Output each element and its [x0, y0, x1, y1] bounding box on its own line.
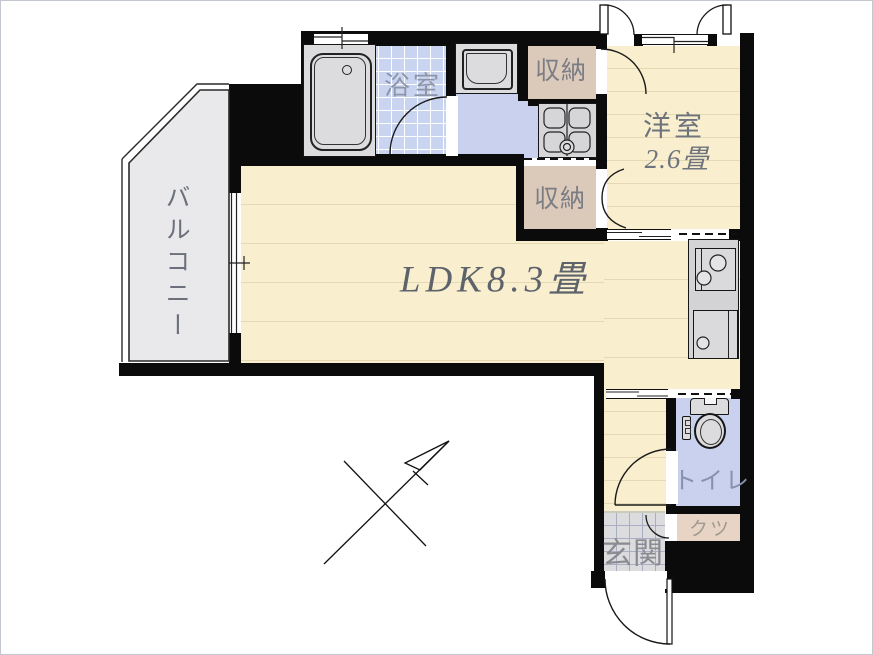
western-room-label: 洋室	[643, 112, 705, 141]
bathtub-inner-line	[314, 57, 366, 145]
storage-lower-label: 収納	[534, 187, 586, 213]
wall-segment	[229, 333, 241, 366]
wall-segment	[518, 41, 528, 101]
storage-upper-label: 収納	[535, 59, 587, 85]
floor-plan: 浴室 収納 収納 洋室 2.6畳 LDK8.3畳 バルコニー トイレ クツ 玄関	[0, 0, 873, 655]
storage-lower-door-opening	[596, 169, 607, 228]
wall-segment	[591, 571, 605, 588]
western-room-size: 2.6畳	[645, 145, 710, 173]
sink-edge-line	[728, 311, 729, 358]
wall-segment	[516, 158, 524, 238]
toilet-seat-line	[700, 419, 722, 445]
casement-window-left-arc	[604, 5, 634, 35]
washbasin-bowl-line	[466, 53, 507, 84]
balcony-label: バルコニー	[162, 184, 188, 344]
kitchen-sink	[693, 310, 738, 359]
washing-machine-pan	[538, 103, 597, 158]
entrance-label: 玄関	[602, 538, 664, 570]
hallway-floor	[604, 389, 668, 513]
toilet-control-panel	[682, 416, 691, 440]
bathroom-label: 浴室	[384, 72, 442, 99]
stove-edge-line	[701, 249, 702, 290]
stove	[695, 248, 736, 291]
wall-segment	[731, 389, 741, 399]
wall-segment	[674, 506, 744, 514]
toilet-button-icon	[685, 428, 691, 434]
wall-segment	[665, 541, 754, 593]
washbasin	[455, 43, 518, 94]
wall-segment	[707, 34, 717, 46]
bathtub-drain-icon	[342, 65, 352, 75]
sliding-door-ldk-hallway	[606, 389, 668, 399]
western-room-window	[642, 34, 708, 45]
toilet-tank-notch	[704, 398, 717, 405]
toilet-label: トイレ	[673, 469, 751, 494]
casement-window-right-panel	[723, 5, 731, 34]
storage-upper-door-opening	[596, 49, 607, 94]
shoes-label: クツ	[689, 520, 731, 540]
wall-segment	[666, 398, 676, 451]
wall-segment	[516, 229, 606, 241]
north-arrow	[324, 441, 449, 564]
bathtub	[303, 44, 376, 157]
casement-window-left-panel	[600, 5, 608, 34]
wall-segment	[229, 84, 241, 193]
bathroom-door-opening	[446, 96, 458, 156]
wall-segment	[596, 31, 607, 49]
sliding-door-western-ldk	[607, 229, 671, 240]
shoes-door-opening	[666, 514, 677, 541]
wall-segment	[119, 363, 604, 376]
toilet-bowl	[694, 413, 726, 449]
toilet-button-icon	[685, 420, 691, 426]
entrance-door-opening	[605, 571, 667, 589]
ldk-label: LDK8.3畳	[400, 262, 590, 301]
balcony-window	[229, 193, 240, 333]
casement-window-right-arc	[697, 5, 727, 35]
